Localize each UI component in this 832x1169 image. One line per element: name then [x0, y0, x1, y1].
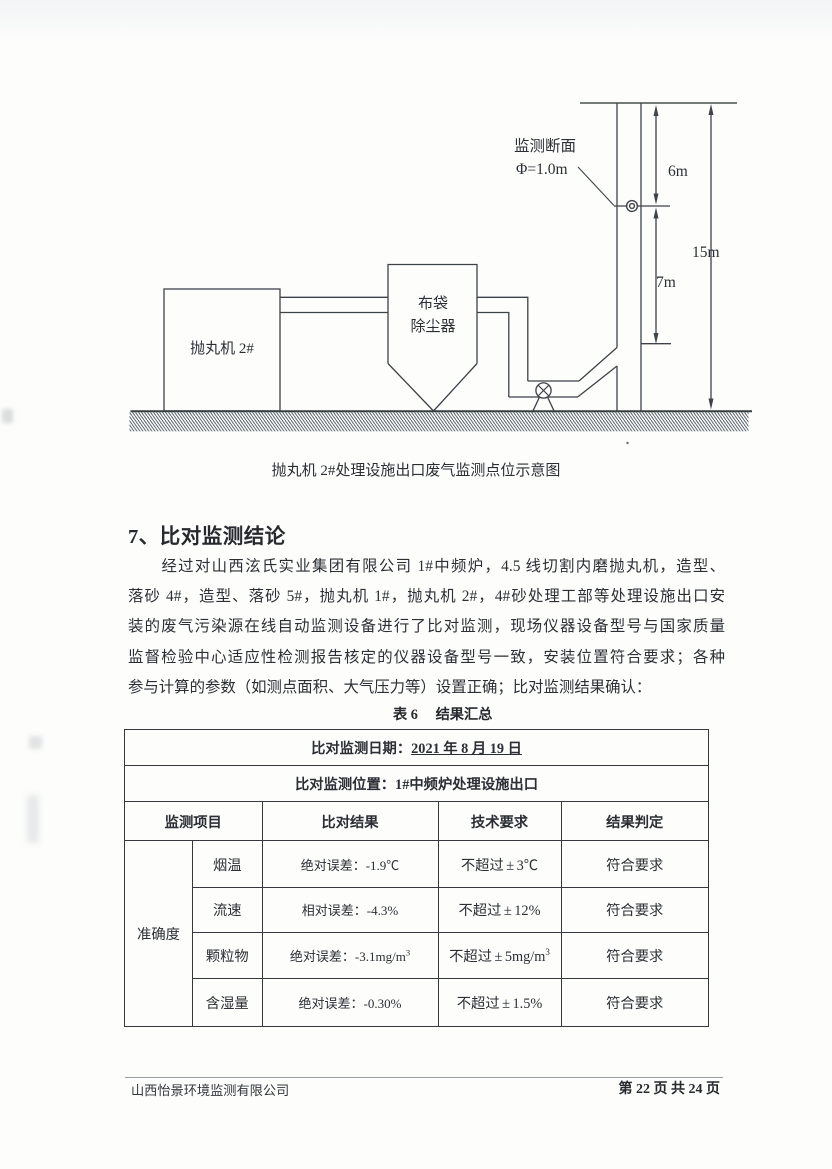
- svg-text:布袋: 布袋: [418, 295, 448, 312]
- svg-text:6m: 6m: [668, 163, 688, 180]
- svg-text:7m: 7m: [656, 274, 676, 291]
- svg-text:15m: 15m: [692, 244, 720, 261]
- svg-text:监测断面: 监测断面: [514, 137, 576, 155]
- svg-text:抛丸机 2#: 抛丸机 2#: [190, 340, 254, 357]
- svg-text:Φ=1.0m: Φ=1.0m: [516, 161, 568, 178]
- svg-text:除尘器: 除尘器: [410, 318, 455, 335]
